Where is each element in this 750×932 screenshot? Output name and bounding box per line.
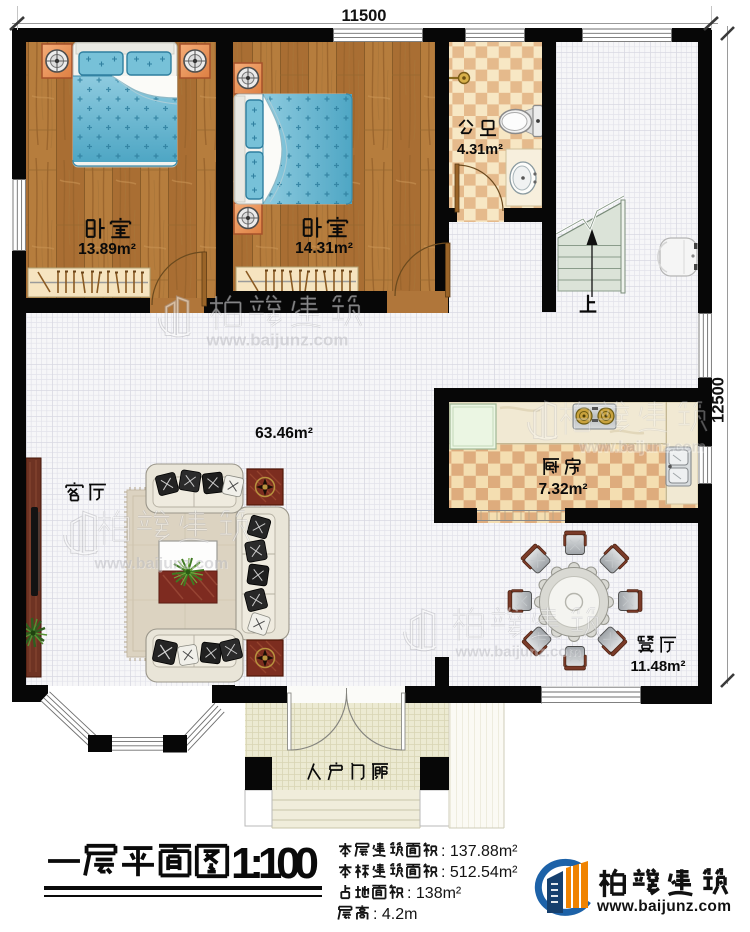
svg-text:11.48m²: 11.48m² bbox=[630, 658, 685, 675]
svg-text:14.31m²: 14.31m² bbox=[295, 240, 353, 257]
svg-text:www.baijunz.com: www.baijunz.com bbox=[596, 898, 731, 915]
svg-text:12500: 12500 bbox=[710, 377, 728, 423]
svg-text:: 512.54m²: : 512.54m² bbox=[441, 864, 518, 881]
svg-text:4.31m²: 4.31m² bbox=[457, 142, 503, 158]
svg-text:: 4.2m: : 4.2m bbox=[373, 906, 417, 923]
svg-text:63.46m²: 63.46m² bbox=[255, 425, 313, 442]
svg-text:www.baijunz.com: www.baijunz.com bbox=[206, 331, 349, 350]
svg-text:www.baijunz.com: www.baijunz.com bbox=[94, 556, 229, 573]
svg-text:www.baijunz.com: www.baijunz.com bbox=[455, 644, 581, 661]
svg-text:: 138m²: : 138m² bbox=[407, 885, 462, 902]
svg-text:7.32m²: 7.32m² bbox=[538, 481, 587, 498]
svg-text:13.89m²: 13.89m² bbox=[78, 241, 136, 258]
svg-text:11500: 11500 bbox=[342, 7, 387, 25]
svg-text:www.baijunz.com: www.baijunz.com bbox=[579, 439, 705, 456]
svg-text:1:100: 1:100 bbox=[231, 839, 319, 888]
svg-text:: 137.88m²: : 137.88m² bbox=[441, 843, 518, 860]
